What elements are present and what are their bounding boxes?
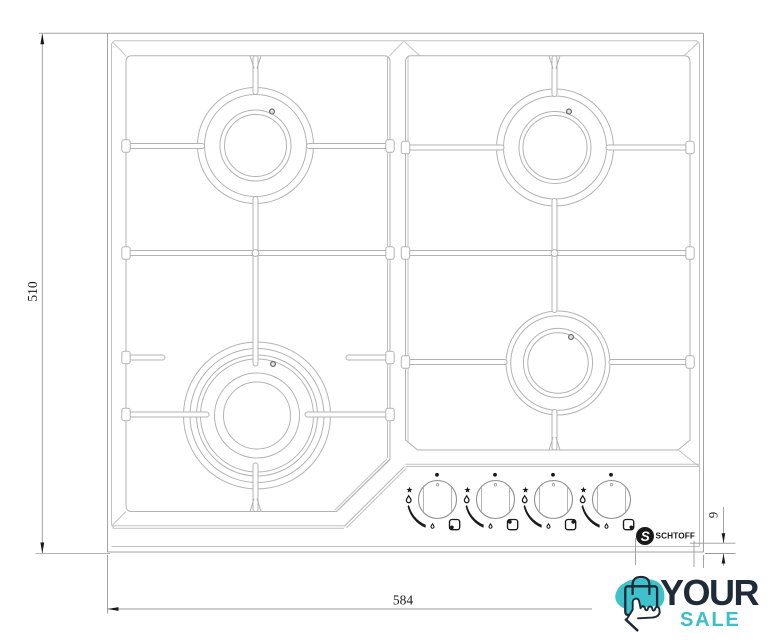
svg-text:9: 9 <box>707 512 721 518</box>
svg-text:YOUR: YOUR <box>660 572 760 613</box>
svg-text:S: S <box>641 529 650 544</box>
svg-text:510: 510 <box>25 281 40 302</box>
svg-text:SALE: SALE <box>680 609 741 631</box>
svg-text:584: 584 <box>393 593 414 608</box>
svg-text:SCHTOFF: SCHTOFF <box>656 532 696 541</box>
